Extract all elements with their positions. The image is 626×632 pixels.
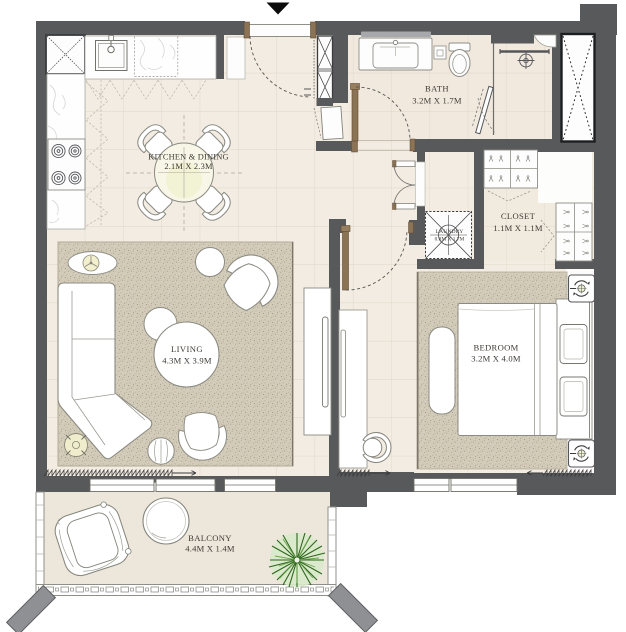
svg-text:1.1M X 1.1M: 1.1M X 1.1M bbox=[493, 223, 543, 233]
svg-text:3.2M X 1.7M: 3.2M X 1.7M bbox=[412, 96, 462, 106]
svg-text:KITCHEN & DINING: KITCHEN & DINING bbox=[148, 153, 228, 162]
svg-text:BATH: BATH bbox=[425, 84, 449, 94]
svg-text:LIVING: LIVING bbox=[171, 344, 203, 354]
svg-text:CLOSET: CLOSET bbox=[501, 211, 536, 221]
svg-text:4.4M X 1.4M: 4.4M X 1.4M bbox=[185, 544, 235, 554]
svg-text:4.3M X 3.9M: 4.3M X 3.9M bbox=[162, 356, 212, 366]
svg-text:0.8M X 1.7M: 0.8M X 1.7M bbox=[435, 237, 465, 243]
svg-text:LAUNDRY: LAUNDRY bbox=[436, 229, 464, 235]
svg-text:3.2M X 4.0M: 3.2M X 4.0M bbox=[471, 354, 521, 364]
svg-text:2.1M X 2.3M: 2.1M X 2.3M bbox=[164, 162, 213, 171]
svg-text:BEDROOM: BEDROOM bbox=[473, 343, 518, 353]
svg-text:BALCONY: BALCONY bbox=[188, 533, 232, 543]
